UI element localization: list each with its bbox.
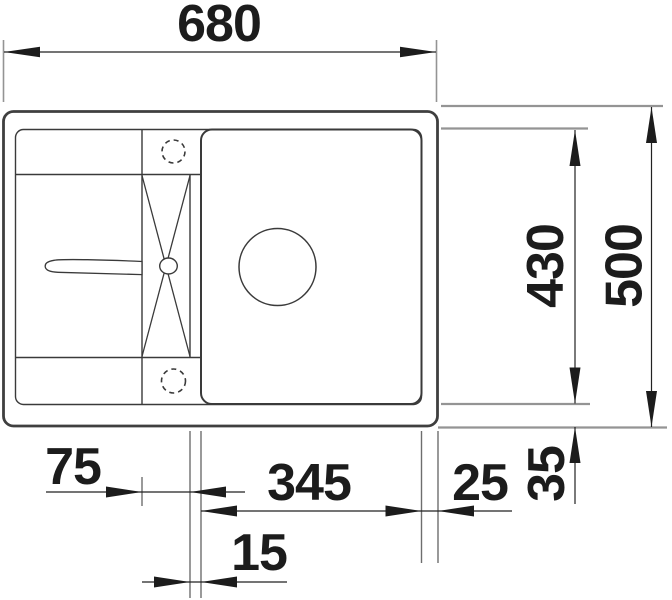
dim-label-500: 500	[596, 224, 654, 308]
sink-dimension-drawing: 680 500 430 35 75 345 25 15	[0, 0, 672, 600]
arrowhead	[201, 506, 237, 517]
arrowhead	[646, 107, 657, 143]
arrowhead	[190, 487, 226, 498]
dim-label-35: 35	[518, 446, 576, 502]
arrowhead	[570, 368, 581, 404]
dim-label-75: 75	[45, 438, 101, 496]
faucet-lever	[45, 260, 142, 275]
arrowhead	[4, 47, 40, 58]
dim-label-15: 15	[231, 524, 287, 582]
sink-body	[4, 112, 438, 427]
dim-label-430: 430	[517, 224, 575, 308]
arrowhead	[570, 130, 581, 166]
arrowhead	[154, 577, 190, 588]
dim-label-25: 25	[452, 454, 508, 512]
dim-label-680: 680	[177, 0, 261, 53]
arrowhead	[646, 391, 657, 427]
arrowhead	[386, 506, 422, 517]
faucet-pivot	[160, 258, 178, 274]
technical-drawing-canvas: 680 500 430 35 75 345 25 15	[0, 0, 672, 600]
dim-label-345: 345	[267, 454, 351, 512]
arrowhead	[106, 487, 142, 498]
arrowhead	[400, 47, 436, 58]
drain-hole	[239, 229, 316, 306]
